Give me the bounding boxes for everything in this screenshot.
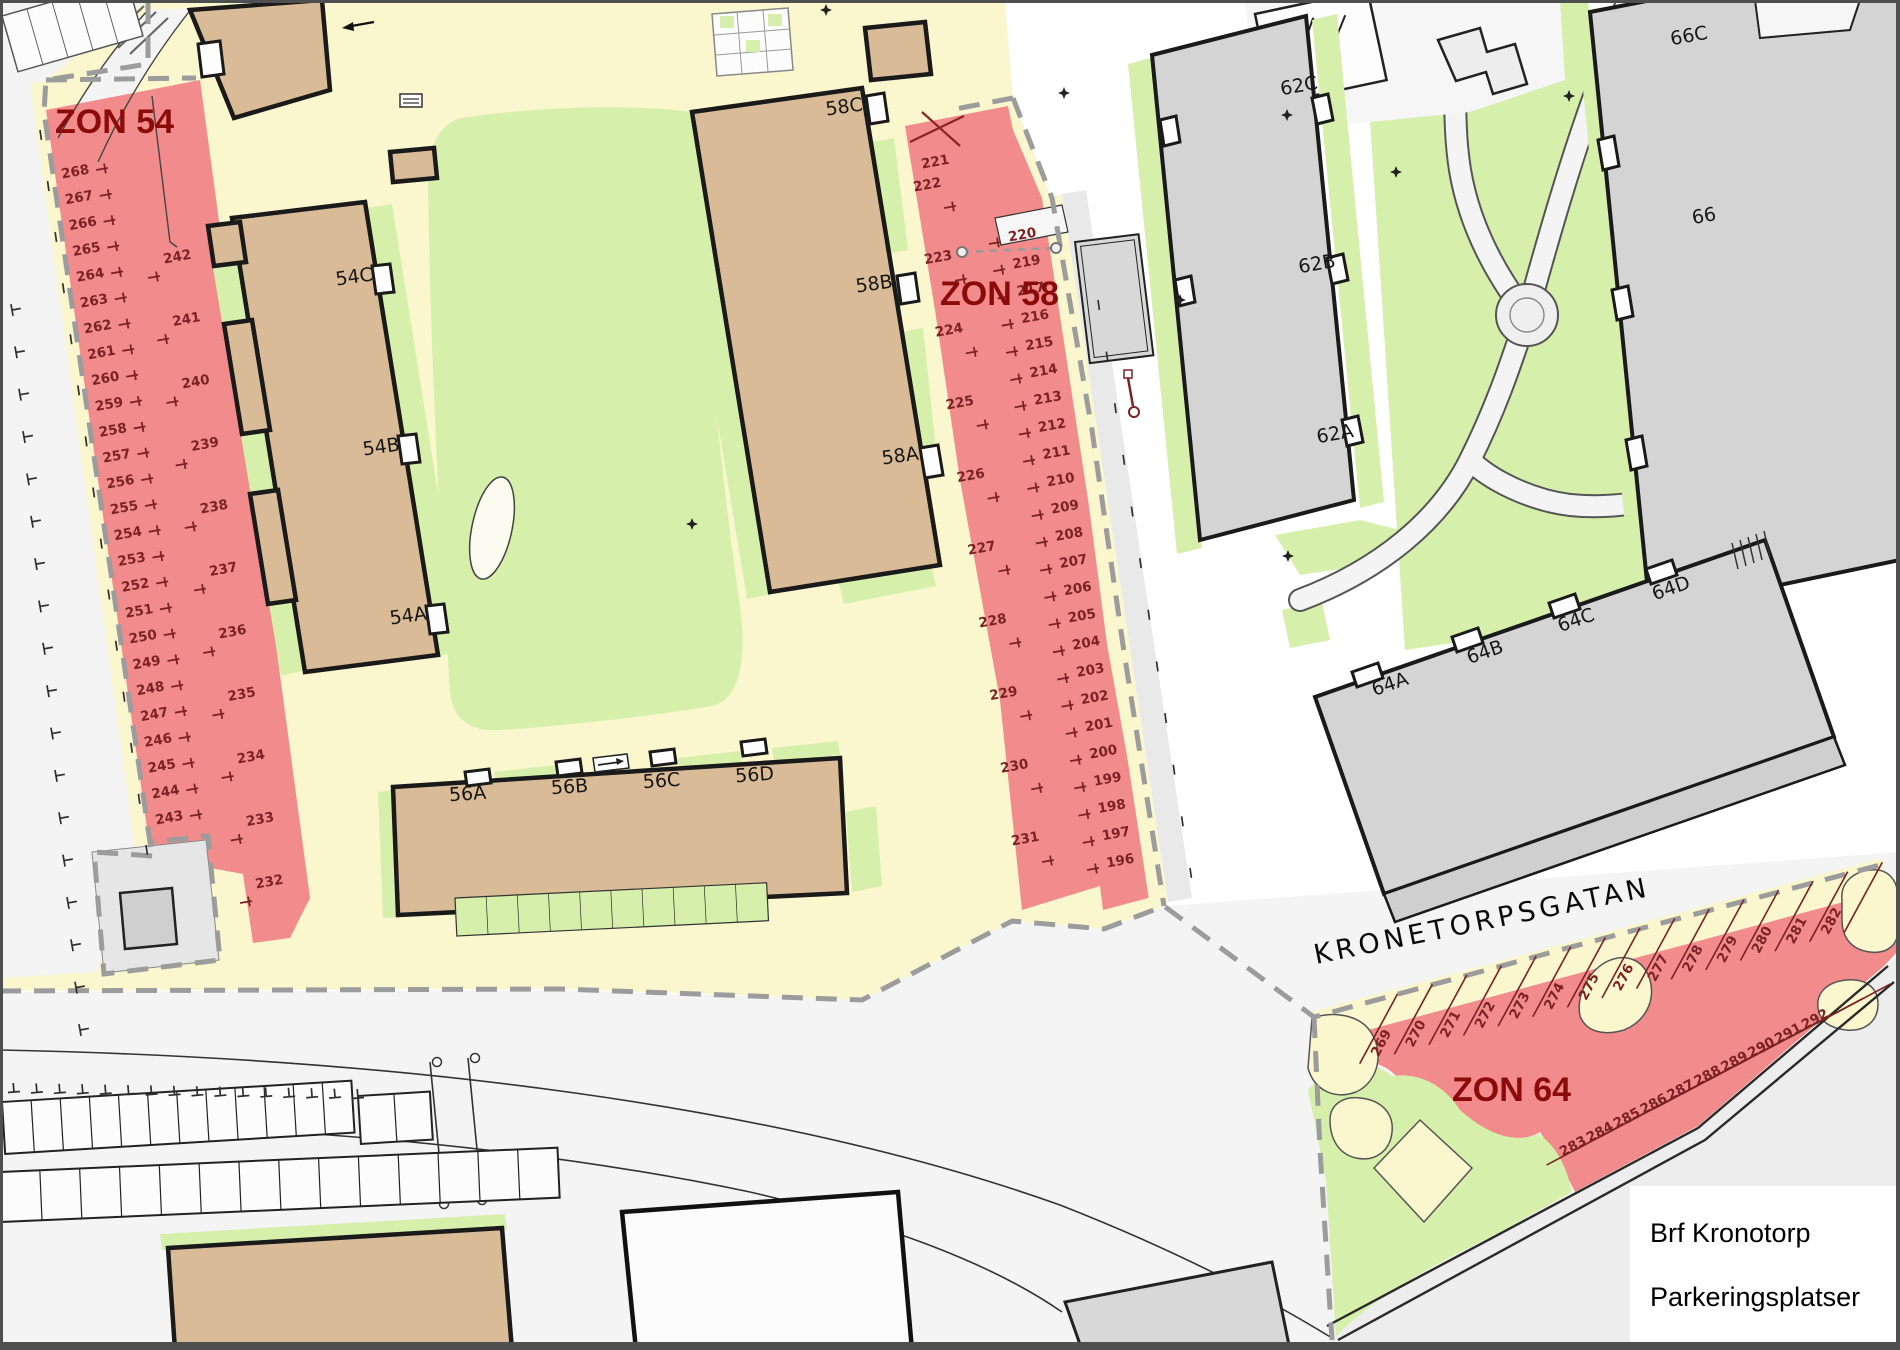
park-circle xyxy=(1496,284,1558,346)
map-canvas: 2682672662652642632622612602592582572562… xyxy=(0,0,1900,1350)
building-top-mid xyxy=(865,22,931,80)
transformer-building xyxy=(1075,234,1153,363)
zone58-label: ZON 58 xyxy=(940,275,1059,313)
zone54-label: ZON 54 xyxy=(55,103,174,141)
garage-row-3 xyxy=(358,1092,433,1144)
building-label-56D: 56D xyxy=(734,763,774,788)
courtyard-structure xyxy=(712,8,793,76)
outbuilding-small xyxy=(390,148,437,182)
site-plan: 2682672662652642632622612602592582572562… xyxy=(0,0,1900,1350)
building-label-66: 66 xyxy=(1690,203,1718,229)
zone64-island-c xyxy=(1842,870,1898,953)
zone64-label: ZON 64 xyxy=(1452,1071,1571,1109)
legend-box xyxy=(1630,1186,1900,1350)
building-label-56B: 56B xyxy=(550,775,589,800)
building-label-56C: 56C xyxy=(642,769,681,794)
legend: Brf Kronotorp Parkeringsplatser xyxy=(1630,1186,1900,1350)
building-label-56A: 56A xyxy=(448,782,487,807)
building-south-2 xyxy=(622,1192,912,1350)
garage-entry-arrow xyxy=(593,754,629,772)
building-south-1 xyxy=(168,1228,512,1350)
legend-subtitle: Parkeringsplatser xyxy=(1650,1282,1860,1312)
zone64-island-d xyxy=(1818,980,1878,1031)
utility-building xyxy=(120,888,177,949)
legend-title: Brf Kronotorp xyxy=(1650,1218,1811,1248)
bench-icon xyxy=(400,94,422,107)
